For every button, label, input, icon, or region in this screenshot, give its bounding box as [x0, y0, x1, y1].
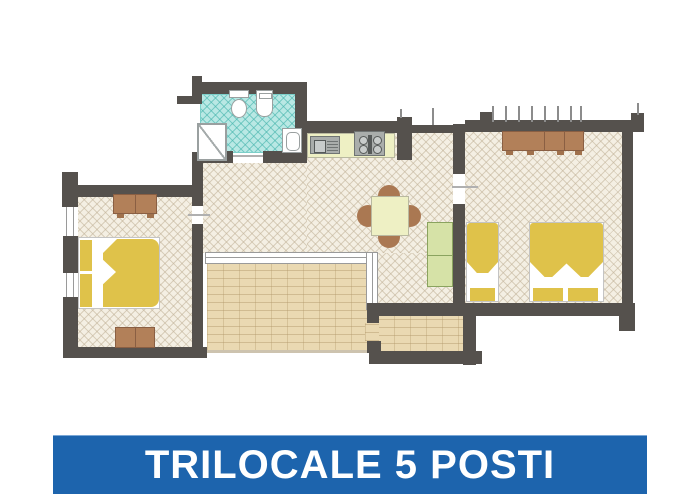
- terrace-side-floor: [378, 316, 463, 352]
- bidet-detail: [259, 93, 272, 99]
- wall-segment: [192, 82, 307, 94]
- wardrobe: [502, 131, 584, 151]
- wardrobe-foot: [557, 151, 564, 155]
- shower-box: [197, 123, 227, 161]
- railing-tick: [570, 106, 572, 122]
- wardrobe-divider: [544, 132, 545, 150]
- green-wardrobe: [427, 222, 453, 287]
- wall-pillar: [367, 341, 381, 353]
- wall-segment: [622, 130, 633, 320]
- window: [63, 273, 78, 297]
- wall-pillar: [367, 303, 379, 323]
- wall-segment: [177, 96, 193, 104]
- railing-tick: [557, 106, 559, 122]
- wardrobe-foot: [527, 151, 534, 155]
- terrace-edge-line: [207, 350, 367, 353]
- railing-tick: [637, 103, 639, 115]
- dresser: [113, 194, 157, 214]
- railing-tick: [400, 109, 402, 118]
- wall-segment: [412, 125, 453, 133]
- railing-tick: [505, 106, 507, 122]
- headboard-cushion: [80, 274, 92, 307]
- wardrobe-foot: [506, 151, 513, 155]
- single-bed-cushion: [470, 288, 495, 301]
- double-bed-cushion: [568, 288, 598, 301]
- door-threshold: [233, 155, 263, 157]
- double-bed-cushion: [533, 288, 563, 301]
- wall-segment: [453, 132, 465, 174]
- railing-tick: [432, 108, 434, 125]
- door-threshold: [188, 214, 210, 216]
- dining-table: [371, 196, 409, 236]
- door-threshold: [452, 186, 478, 188]
- terrace-opening-floor: [365, 323, 379, 341]
- toilet-tank: [229, 90, 249, 98]
- wardrobe-divider: [428, 255, 452, 256]
- sink-basin: [314, 140, 326, 153]
- wall-segment: [453, 204, 465, 305]
- dresser-foot: [147, 214, 154, 218]
- banner-label: TRILOCALE 5 POSTI: [145, 443, 555, 488]
- wardrobe-divider: [564, 132, 565, 150]
- stove: [354, 131, 385, 156]
- washbasin-bowl: [286, 132, 300, 151]
- headboard-cushion: [80, 240, 92, 271]
- wall-pillar: [619, 303, 635, 331]
- dresser: [115, 327, 155, 348]
- wall-segment: [192, 224, 203, 358]
- railing-tick: [492, 106, 494, 122]
- dresser-divider: [135, 328, 136, 347]
- glass-side-panel: [366, 252, 378, 310]
- wall-pillar: [397, 117, 412, 160]
- title-banner: TRILOCALE 5 POSTI: [53, 435, 647, 494]
- railing-tick: [531, 106, 533, 122]
- railing-tick: [544, 106, 546, 122]
- terrace-main-floor: [207, 263, 367, 351]
- dresser-divider: [135, 195, 136, 213]
- sink-drainboard: [327, 140, 338, 151]
- toilet-bowl: [231, 99, 247, 118]
- wall-segment: [367, 303, 635, 316]
- wall-segment: [369, 351, 482, 364]
- sliding-glass-door: [205, 252, 377, 264]
- railing-tick: [518, 106, 520, 122]
- living-room-floor: [203, 163, 307, 253]
- wardrobe-foot: [575, 151, 582, 155]
- stove-panel: [368, 135, 372, 154]
- railing-tick: [580, 106, 582, 122]
- single-bed-blanket: [467, 223, 498, 273]
- window: [63, 207, 78, 236]
- dresser-foot: [117, 214, 124, 218]
- wall-segment: [63, 236, 78, 273]
- kitchen-sink: [310, 136, 340, 154]
- wall-segment: [63, 347, 207, 358]
- floor-plan-page: TRILOCALE 5 POSTI: [0, 0, 700, 500]
